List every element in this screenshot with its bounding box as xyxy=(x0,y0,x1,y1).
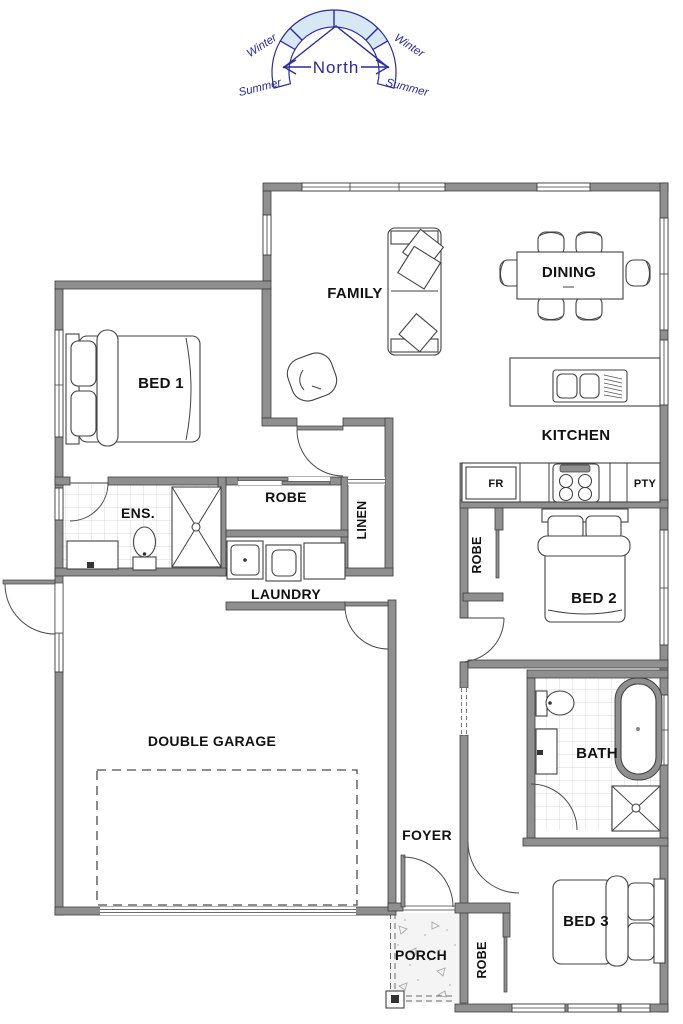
bed3-window-south-3 xyxy=(621,1004,650,1012)
label-bed2: BED 2 xyxy=(571,590,617,607)
cooktop-symbol xyxy=(553,464,599,502)
label-pantry: PTY xyxy=(634,478,657,490)
laundry-fixtures xyxy=(227,541,345,581)
garage-parking-outline xyxy=(97,770,357,905)
laundry-tub xyxy=(227,541,263,579)
hall-dashed-opening xyxy=(460,688,468,735)
garage-door-opening-bottom xyxy=(100,907,356,915)
label-robe-bed3: ROBE xyxy=(475,941,489,978)
bed3-door xyxy=(468,842,519,893)
bath-shower xyxy=(612,786,660,831)
armchair xyxy=(283,348,341,405)
robe3-sliding-door xyxy=(504,937,507,992)
bed3-window-south-1 xyxy=(512,1004,565,1012)
bath-tap xyxy=(537,750,543,755)
ensuite-shower xyxy=(172,487,221,567)
label-laundry: LAUNDRY xyxy=(251,586,321,602)
label-linen: LINEN xyxy=(355,501,369,540)
front-entry-door xyxy=(401,855,453,907)
ensuite-window-west xyxy=(55,488,63,520)
compass-summer-left-label: Summer xyxy=(237,77,283,99)
bed3-window-south-2 xyxy=(568,1004,618,1012)
compass-north-label: North xyxy=(313,58,360,77)
pillow xyxy=(628,883,654,920)
washing-machine xyxy=(266,545,301,581)
compass-winter-right-label: Winter xyxy=(392,32,427,61)
floor-plan-page: North Winter Winter Summer Summer xyxy=(0,0,683,1024)
linen-doors xyxy=(348,477,385,485)
label-kitchen: KITCHEN xyxy=(542,427,611,444)
ensuite-tap xyxy=(87,562,94,568)
bed1-suite-door xyxy=(297,426,343,476)
label-bed3: BED 3 xyxy=(563,913,609,930)
dining-window-east xyxy=(660,218,668,330)
family-window-north xyxy=(302,183,445,191)
sofa xyxy=(388,228,443,355)
sink-bowl-left xyxy=(557,374,577,398)
laundry-bench xyxy=(304,543,345,579)
kitchen-window-east xyxy=(660,340,668,405)
label-bed1: BED 1 xyxy=(138,375,184,392)
bathtub xyxy=(615,678,662,780)
garage-internal-door xyxy=(345,602,388,649)
sink-bowl-right xyxy=(580,374,599,398)
label-family: FAMILY xyxy=(327,285,382,302)
bath-toilet xyxy=(536,691,574,716)
label-foyer: FOYER xyxy=(402,827,452,843)
garage-window-west xyxy=(55,633,63,672)
label-porch: PORCH xyxy=(395,947,447,963)
compass-summer-right-label: Summer xyxy=(384,77,430,99)
bed1-window-west xyxy=(55,330,63,437)
ensuite-toilet xyxy=(133,527,156,570)
label-dining: DINING xyxy=(542,264,596,281)
label-fridge: FR xyxy=(488,478,503,490)
label-robe-bed2: ROBE xyxy=(470,536,484,573)
label-ensuite: ENS. xyxy=(121,505,155,521)
pillow xyxy=(71,341,96,386)
label-bath: BATH xyxy=(576,745,618,762)
pillow xyxy=(71,391,96,436)
floor-plan-drawing: North Winter Winter Summer Summer xyxy=(0,0,683,1024)
pillow xyxy=(628,923,654,960)
label-garage: DOUBLE GARAGE xyxy=(148,733,276,749)
robe1-sliding-doors xyxy=(238,477,330,485)
north-compass: North Winter Winter Summer Summer xyxy=(237,10,430,99)
bed2-door xyxy=(460,618,504,662)
label-robe-bed1: ROBE xyxy=(265,489,307,505)
family-window-west xyxy=(263,215,271,255)
kitchen-island xyxy=(510,358,660,406)
bed2-window-east xyxy=(660,530,668,645)
front-door-sill xyxy=(403,906,455,910)
robe2-sliding-door xyxy=(496,530,499,578)
dining-window-north xyxy=(537,183,590,191)
garage-side-door xyxy=(3,580,63,634)
